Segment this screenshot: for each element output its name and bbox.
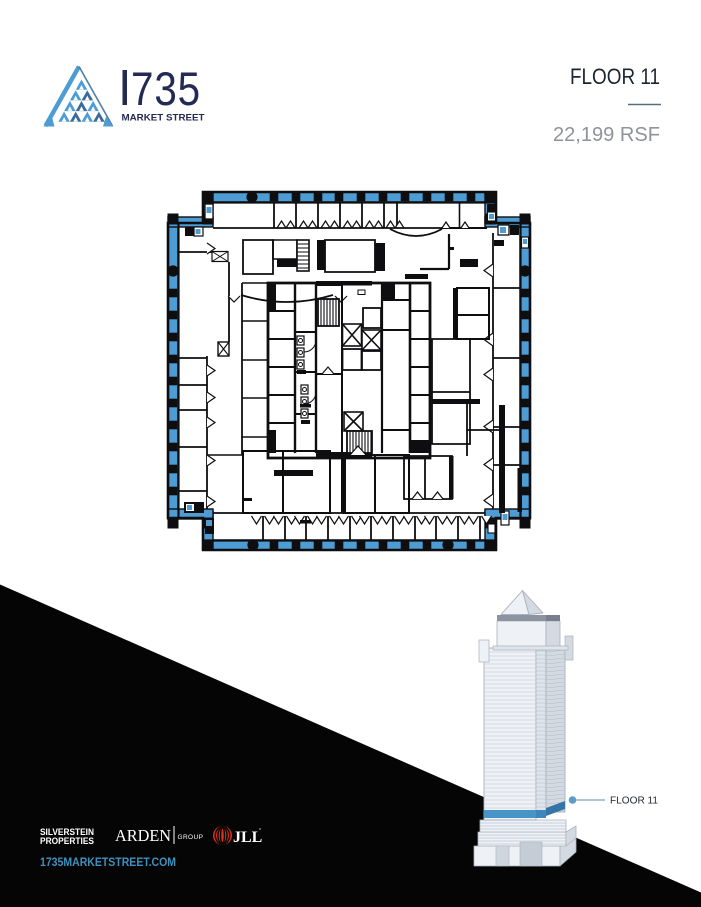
svg-text:MARKET STREET: MARKET STREET — [122, 113, 205, 124]
svg-text:FLOOR 11: FLOOR 11 — [610, 796, 658, 807]
svg-text:°: ° — [259, 828, 261, 834]
svg-text:FLOOR 11: FLOOR 11 — [570, 64, 660, 89]
svg-text:735: 735 — [131, 62, 201, 115]
svg-text:GROUP: GROUP — [178, 834, 204, 841]
svg-text:ARDEN: ARDEN — [115, 826, 171, 845]
svg-text:JLL: JLL — [233, 829, 262, 846]
svg-text:PROPERTIES: PROPERTIES — [40, 836, 94, 847]
svg-text:1735MARKETSTREET.COM: 1735MARKETSTREET.COM — [40, 857, 176, 869]
svg-text:22,199 RSF: 22,199 RSF — [553, 124, 660, 146]
